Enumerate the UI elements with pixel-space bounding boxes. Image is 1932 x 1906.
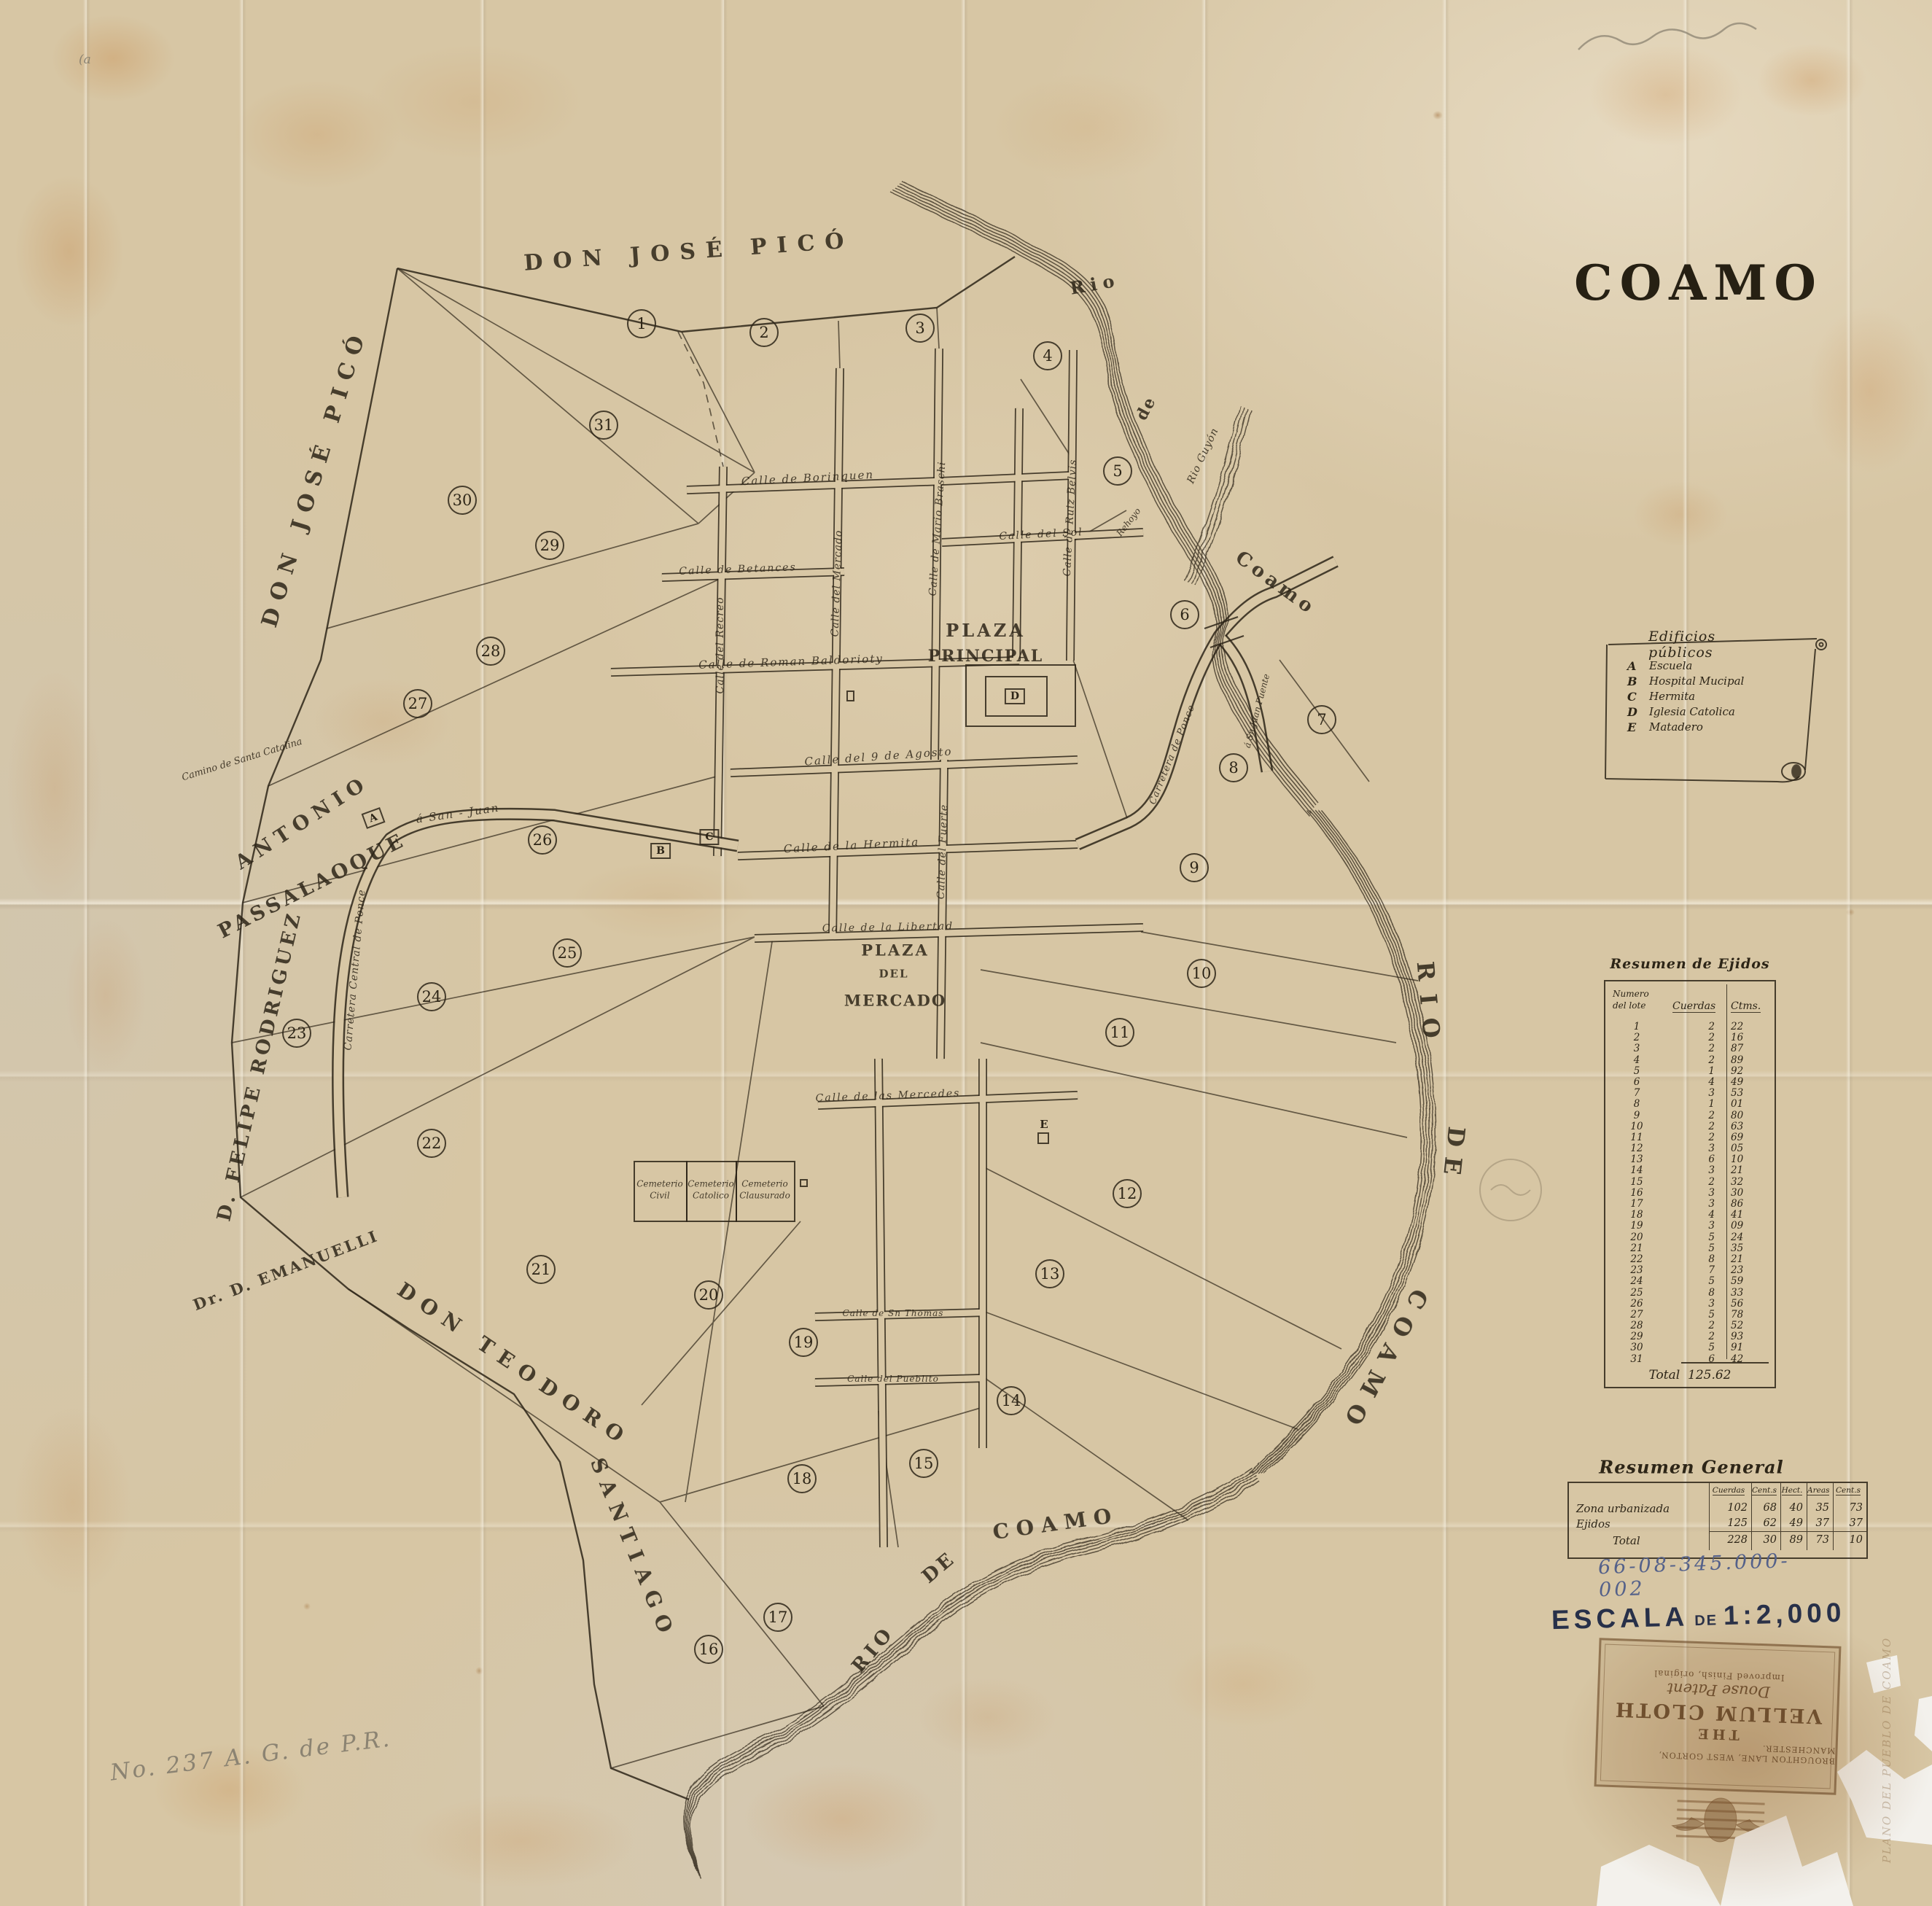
cuerdas-value: 1 (1668, 1098, 1722, 1109)
cuerdas-value: 2 (1668, 1021, 1722, 1032)
ctms-value: 16 (1722, 1032, 1766, 1043)
legend-entry-C: CHermita (1627, 690, 1695, 704)
lot-marker-13: 13 (1035, 1259, 1064, 1288)
cuerdas-value: 3 (1668, 1298, 1722, 1309)
general-header-1: Cent.s (1751, 1483, 1780, 1501)
lot-marker-22: 22 (417, 1129, 446, 1158)
lot-number: 3 (1605, 1043, 1668, 1054)
stamp-line: VELLUM CLOTH (1613, 1696, 1822, 1728)
scale-word: ESCALA (1551, 1601, 1689, 1635)
general-row-label-text: Ejidos (1576, 1517, 1610, 1530)
lot-number: 21 (1605, 1242, 1668, 1253)
stamp-line: Improved Finish, original (1654, 1668, 1785, 1683)
lot-number: 10 (1605, 1121, 1668, 1132)
stamp-line: Douse Patent (1667, 1679, 1770, 1701)
ctms-value: 56 (1722, 1298, 1766, 1309)
ejidos-table-title: Resumen de Ejidos (1610, 956, 1769, 972)
lot-marker-18: 18 (787, 1464, 817, 1493)
building-outlines (634, 665, 1075, 1221)
ejidos-rows: 1222221632874289519264497353810192801026… (1605, 1021, 1775, 1364)
general-value-0-1-text: 68 (1764, 1502, 1777, 1514)
scale-value: 1:2,000 (1723, 1598, 1846, 1630)
ejidos-total-label: Total (1649, 1368, 1680, 1382)
ctms-value: 21 (1722, 1253, 1766, 1264)
ejidos-row-24: 24559 (1605, 1275, 1775, 1286)
lot-number: 28 (1605, 1320, 1668, 1331)
general-value-1-3-text: 37 (1816, 1517, 1829, 1529)
cuerdas-value: 5 (1668, 1242, 1722, 1253)
general-header-0-text: Cuerdas (1713, 1486, 1745, 1495)
ejidos-row-5: 5192 (1605, 1065, 1775, 1076)
lot-number: 23 (1605, 1264, 1668, 1275)
street-label-recreo: Calle del Recreo (715, 597, 725, 694)
ejidos-total-value: 125.62 (1688, 1368, 1731, 1382)
general-value-2-4: 10 (1833, 1533, 1866, 1550)
general-header-1-text: Cent.s (1752, 1486, 1777, 1495)
cuerdas-value: 3 (1668, 1143, 1722, 1154)
lot-number: 6 (1605, 1076, 1668, 1087)
ejidos-row-2: 2216 (1605, 1032, 1775, 1043)
general-value-2-2: 89 (1780, 1533, 1807, 1550)
ctms-value: 35 (1722, 1242, 1766, 1253)
legend-entry-B: BHospital Mucipal (1627, 674, 1744, 688)
cuerdas-value: 4 (1668, 1076, 1722, 1087)
ctms-value: 21 (1722, 1164, 1766, 1175)
ctms-value: 52 (1722, 1320, 1766, 1331)
cuerdas-value: 2 (1668, 1121, 1722, 1132)
ejidos-row-15: 15232 (1605, 1176, 1775, 1187)
lot-marker-21: 21 (526, 1255, 556, 1284)
cuerdas-value: 3 (1668, 1164, 1722, 1175)
lot-marker-23: 23 (282, 1019, 311, 1048)
general-value-1-2-text: 49 (1790, 1517, 1803, 1529)
ctms-value: 89 (1722, 1054, 1766, 1065)
building-marker-C: C (699, 829, 719, 845)
lot-marker-15: 15 (909, 1449, 938, 1478)
general-row-label: Total (1569, 1533, 1709, 1550)
ejidos-row-11: 11269 (1605, 1132, 1775, 1143)
ctms-value: 93 (1722, 1331, 1766, 1342)
cuerdas-value: 2 (1668, 1032, 1722, 1043)
bleedthrough-note: PLANO DEL PUEBLO DE COAMO (1880, 1637, 1893, 1863)
map-sheet: DON JOSÉ PICÓDON JOSÉ PICÓANTONIOPASSALA… (0, 0, 1932, 1906)
general-value-0-0-text: 102 (1727, 1502, 1748, 1514)
cuerdas-value: 2 (1668, 1331, 1722, 1342)
lot-number: 4 (1605, 1054, 1668, 1065)
general-row-label-text: Total (1613, 1534, 1640, 1547)
vellum-cloth-stamp: BROUGHTON LANE, WEST GORTON, MANCHESTER.… (1594, 1638, 1842, 1794)
stamp-line: THE (1694, 1724, 1740, 1743)
lot-number: 13 (1605, 1154, 1668, 1164)
lot-number: 27 (1605, 1309, 1668, 1320)
ejidos-row-14: 14321 (1605, 1164, 1775, 1175)
legend-name: Escuela (1649, 659, 1692, 673)
cuerdas-value: 2 (1668, 1110, 1722, 1121)
ctms-value: 78 (1722, 1309, 1766, 1320)
cuerdas-value: 3 (1668, 1087, 1722, 1098)
general-value-2-0: 228 (1709, 1533, 1751, 1550)
legend-box: Edificios públicos AEscuelaBHospital Muc… (1601, 633, 1834, 790)
lot-marker-4: 4 (1033, 341, 1062, 370)
ejidos-row-16: 16330 (1605, 1187, 1775, 1198)
ejidos-row-7: 7353 (1605, 1087, 1775, 1098)
lot-marker-7: 7 (1307, 705, 1336, 734)
general-table: CuerdasCent.sHect.AreasCent.sZona urbani… (1567, 1482, 1868, 1559)
ejidos-row-17: 17386 (1605, 1198, 1775, 1209)
lot-number: 26 (1605, 1298, 1668, 1309)
cuerdas-value: 2 (1668, 1043, 1722, 1054)
building-marker-B: B (650, 843, 671, 859)
ejidos-total-rule (1681, 1362, 1769, 1364)
pencil-scribble (1578, 23, 1756, 50)
ctms-value: 05 (1722, 1143, 1766, 1154)
lot-number: 14 (1605, 1164, 1668, 1175)
lot-marker-6: 6 (1170, 600, 1199, 629)
ejidos-row-25: 25833 (1605, 1287, 1775, 1298)
plaza-label-mercado-1: PLAZA (861, 943, 929, 958)
lot-number: 16 (1605, 1187, 1668, 1198)
ejidos-row-18: 18441 (1605, 1209, 1775, 1220)
ctms-value: 49 (1722, 1076, 1766, 1087)
general-row-label: Ejidos (1569, 1516, 1709, 1531)
general-value-2-3-text: 73 (1816, 1534, 1829, 1546)
lot-marker-1: 1 (627, 309, 656, 338)
ejidos-row-20: 20524 (1605, 1232, 1775, 1242)
embossed-seal (1480, 1159, 1541, 1221)
general-value-2-1: 30 (1751, 1533, 1780, 1550)
lot-number: 30 (1605, 1342, 1668, 1353)
ctms-value: 86 (1722, 1198, 1766, 1209)
general-value-0-2: 40 (1780, 1501, 1807, 1516)
cuerdas-value: 5 (1668, 1342, 1722, 1353)
ejidos-row-22: 22821 (1605, 1253, 1775, 1264)
parcel-id-note: 66-08-345.000-002 (1598, 1549, 1822, 1602)
lot-marker-12: 12 (1113, 1179, 1142, 1208)
general-value-0-3-text: 35 (1816, 1502, 1829, 1514)
general-header-2-text: Hect. (1782, 1486, 1803, 1495)
general-value-0-1: 68 (1751, 1501, 1780, 1516)
general-header-spacer (1569, 1483, 1709, 1501)
legend-key: D (1627, 705, 1649, 719)
ejidos-header-lot: Numero del lote (1613, 989, 1664, 1011)
ejidos-row-23: 23723 (1605, 1264, 1775, 1275)
general-header-3: Areas (1807, 1483, 1833, 1501)
general-value-0-4: 73 (1833, 1501, 1866, 1516)
cuerdas-value: 5 (1668, 1232, 1722, 1242)
lot-number: 12 (1605, 1143, 1668, 1154)
stamp-line: BROUGHTON LANE, WEST GORTON, MANCHESTER. (1597, 1738, 1836, 1766)
lot-marker-28: 28 (476, 637, 505, 666)
ejidos-row-28: 28252 (1605, 1320, 1775, 1331)
ejidos-row-21: 21535 (1605, 1242, 1775, 1253)
legend-name: Hospital Mucipal (1649, 674, 1744, 688)
lot-marker-31: 31 (589, 411, 618, 440)
legend-title: Edificios públicos (1648, 629, 1772, 661)
ctms-value: 22 (1722, 1021, 1766, 1032)
cuerdas-value: 5 (1668, 1309, 1722, 1320)
lot-marker-17: 17 (763, 1603, 792, 1632)
ctms-value: 91 (1722, 1342, 1766, 1353)
lot-number: 5 (1605, 1065, 1668, 1076)
lot-marker-27: 27 (403, 689, 432, 718)
general-header-4-text: Cent.s (1836, 1486, 1861, 1495)
ctms-value: 80 (1722, 1110, 1766, 1121)
lot-number: 18 (1605, 1209, 1668, 1220)
lot-number: 22 (1605, 1253, 1668, 1264)
ejidos-row-27: 27578 (1605, 1309, 1775, 1320)
lot-number: 1 (1605, 1021, 1668, 1032)
building-marker-E: E (1035, 1117, 1052, 1132)
ctms-value: 92 (1722, 1065, 1766, 1076)
ejidos-row-6: 6449 (1605, 1076, 1775, 1087)
lot-marker-29: 29 (535, 531, 564, 560)
plaza-label-mercado-2: DEL (879, 969, 909, 980)
ejidos-row-8: 8101 (1605, 1098, 1775, 1109)
cemetery-label-clausurado: Cemeterio Clausurado (737, 1178, 792, 1201)
lot-number: 17 (1605, 1198, 1668, 1209)
cuerdas-value: 2 (1668, 1054, 1722, 1065)
ejidos-table: Numero del lote Cuerdas Ctms. 1222221632… (1604, 980, 1776, 1388)
legend-key: A (1627, 659, 1649, 673)
lot-number: 8 (1605, 1098, 1668, 1109)
ejidos-header-cuerdas: Cuerdas (1672, 1000, 1715, 1013)
lot-division-lines (232, 268, 1418, 1768)
ctms-value: 69 (1722, 1132, 1766, 1143)
general-value-2-2-text: 89 (1790, 1534, 1803, 1546)
cuerdas-value: 2 (1668, 1132, 1722, 1143)
general-value-2-0-text: 228 (1727, 1534, 1748, 1546)
cuerdas-value: 3 (1668, 1220, 1722, 1231)
cuerdas-value: 1 (1668, 1065, 1722, 1076)
general-header-2: Hect. (1780, 1483, 1807, 1501)
legend-key: C (1627, 690, 1649, 704)
lot-number: 20 (1605, 1232, 1668, 1242)
legend-key: E (1627, 720, 1649, 734)
general-value-1-3: 37 (1807, 1516, 1833, 1531)
ejidos-row-26: 26356 (1605, 1298, 1775, 1309)
ctms-value: 59 (1722, 1275, 1766, 1286)
river-label-east-rio: RIO (1414, 960, 1445, 1052)
ctms-value: 32 (1722, 1176, 1766, 1187)
corner-pencil-mark: (a (79, 52, 91, 67)
building-marker-D: D (1005, 688, 1025, 704)
legend-name: Iglesia Catolica (1649, 705, 1735, 719)
street-label-sn-thomas: Calle de Sn Thomas (843, 1309, 944, 1318)
general-value-1-4-text: 37 (1850, 1517, 1863, 1529)
lot-marker-26: 26 (528, 825, 557, 855)
lot-marker-25: 25 (553, 938, 582, 968)
ejidos-row-4: 4289 (1605, 1054, 1775, 1065)
plaza-label-principal-2: PRINCIPAL (928, 648, 1044, 664)
general-value-0-2-text: 40 (1790, 1502, 1803, 1514)
ejidos-row-1: 1222 (1605, 1021, 1775, 1032)
cuerdas-value: 6 (1668, 1154, 1722, 1164)
lot-marker-20: 20 (694, 1280, 723, 1310)
ctms-value: 63 (1722, 1121, 1766, 1132)
ejidos-row-10: 10263 (1605, 1121, 1775, 1132)
lot-marker-8: 8 (1219, 753, 1248, 782)
cemetery-label-civil: Cemeterio Civil (632, 1178, 688, 1201)
ctms-value: 23 (1722, 1264, 1766, 1275)
general-value-0-3: 35 (1807, 1501, 1833, 1516)
cuerdas-value: 3 (1668, 1187, 1722, 1198)
lot-marker-2: 2 (749, 318, 779, 347)
lot-number: 2 (1605, 1032, 1668, 1043)
lot-number: 25 (1605, 1287, 1668, 1298)
street-label-pueblito: Calle del Pueblito (847, 1374, 939, 1383)
general-value-1-0-text: 125 (1727, 1517, 1748, 1529)
ejidos-row-19: 19309 (1605, 1220, 1775, 1231)
general-value-1-1-text: 62 (1764, 1517, 1777, 1529)
ejidos-row-13: 13610 (1605, 1154, 1775, 1164)
legend-name: Matadero (1649, 720, 1703, 734)
lot-number: 15 (1605, 1176, 1668, 1187)
ctms-value: 09 (1722, 1220, 1766, 1231)
general-row-label-text: Zona urbanizada (1576, 1502, 1670, 1515)
legend-key: B (1627, 674, 1649, 688)
cuerdas-value: 2 (1668, 1320, 1722, 1331)
lot-number: 7 (1605, 1087, 1668, 1098)
ejidos-row-9: 9280 (1605, 1110, 1775, 1121)
cuerdas-value: 4 (1668, 1209, 1722, 1220)
ejidos-header-ctms: Ctms. (1731, 1000, 1761, 1013)
general-value-1-0: 125 (1709, 1516, 1751, 1531)
lot-number: 9 (1605, 1110, 1668, 1121)
cuerdas-value: 5 (1668, 1275, 1722, 1286)
lot-marker-11: 11 (1105, 1018, 1134, 1047)
cuerdas-value: 7 (1668, 1264, 1722, 1275)
ctms-value: 01 (1722, 1098, 1766, 1109)
legend-entry-E: EMatadero (1627, 720, 1703, 734)
legend-name: Hermita (1649, 690, 1695, 704)
general-value-2-3: 73 (1807, 1533, 1833, 1550)
cuerdas-value: 2 (1668, 1176, 1722, 1187)
general-table-title: Resumen General (1599, 1457, 1783, 1478)
ctms-value: 33 (1722, 1287, 1766, 1298)
ejidos-total: Total 125.62 (1605, 1368, 1775, 1382)
ejidos-row-3: 3287 (1605, 1043, 1775, 1054)
general-value-1-4: 37 (1833, 1516, 1866, 1531)
cuerdas-value: 8 (1668, 1287, 1722, 1298)
lot-marker-5: 5 (1103, 456, 1132, 486)
ejidos-row-30: 30591 (1605, 1342, 1775, 1353)
lot-marker-19: 19 (789, 1328, 818, 1357)
plaza-label-principal-1: PLAZA (946, 622, 1026, 639)
lot-marker-14: 14 (997, 1386, 1026, 1415)
general-row-label: Zona urbanizada (1569, 1501, 1709, 1516)
lot-number: 24 (1605, 1275, 1668, 1286)
lot-number: 29 (1605, 1331, 1668, 1342)
general-value-0-0: 102 (1709, 1501, 1751, 1516)
legend-entry-D: DIglesia Catolica (1627, 705, 1735, 719)
lot-marker-24: 24 (417, 982, 446, 1011)
lot-number: 11 (1605, 1132, 1668, 1143)
cuerdas-value: 3 (1668, 1198, 1722, 1209)
map-title: COAMO (1574, 254, 1823, 311)
ctms-value: 30 (1722, 1187, 1766, 1198)
ejidos-row-12: 12305 (1605, 1143, 1775, 1154)
ctms-value: 10 (1722, 1154, 1766, 1164)
general-header-4: Cent.s (1833, 1483, 1866, 1501)
general-value-2-1-text: 30 (1764, 1534, 1777, 1546)
lot-marker-16: 16 (694, 1635, 723, 1664)
lot-number: 19 (1605, 1220, 1668, 1231)
lot-marker-3: 3 (905, 314, 935, 343)
ctms-value: 41 (1722, 1209, 1766, 1220)
cemetery-label-catolico: Cemeterio Catolico (683, 1178, 739, 1201)
ctms-value: 87 (1722, 1043, 1766, 1054)
general-value-2-4-text: 10 (1850, 1534, 1863, 1546)
lot-marker-30: 30 (448, 486, 477, 515)
ctms-value: 24 (1722, 1232, 1766, 1242)
river-label-east-de: DE (1439, 1125, 1468, 1186)
plaza-label-mercado-3: MERCADO (844, 993, 946, 1008)
ctms-value: 53 (1722, 1087, 1766, 1098)
ejidos-row-29: 29293 (1605, 1331, 1775, 1342)
general-value-1-1: 62 (1751, 1516, 1780, 1531)
general-value-1-2: 49 (1780, 1516, 1807, 1531)
lot-number: 31 (1605, 1353, 1668, 1364)
legend-entry-A: AEscuela (1627, 659, 1692, 673)
cuerdas-value: 8 (1668, 1253, 1722, 1264)
lot-marker-9: 9 (1180, 853, 1209, 882)
general-value-0-4-text: 73 (1850, 1502, 1863, 1514)
street-label-libertad: Calle de la Libertad (822, 921, 954, 933)
general-header-3-text: Areas (1807, 1486, 1829, 1495)
scale-de: DE (1688, 1612, 1723, 1629)
general-header-0: Cuerdas (1709, 1483, 1751, 1501)
lot-marker-10: 10 (1187, 959, 1216, 988)
